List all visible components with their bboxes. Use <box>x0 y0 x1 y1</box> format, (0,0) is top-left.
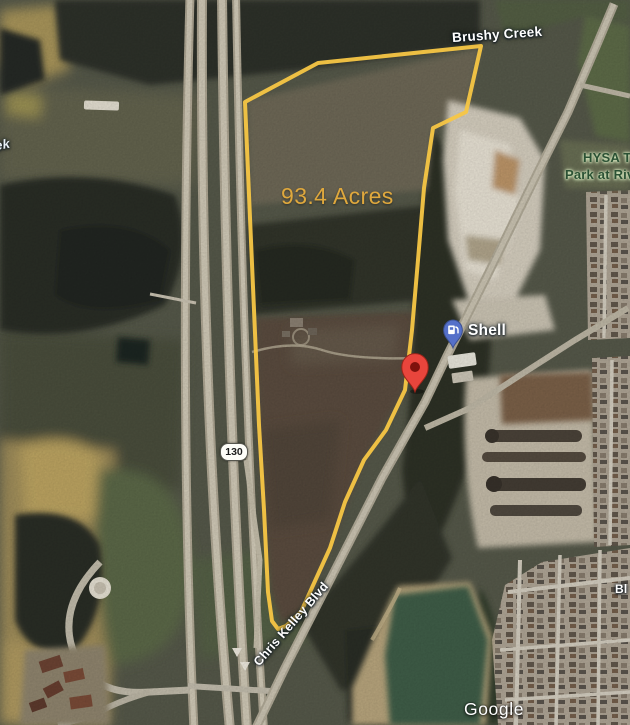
highway-130-shield: 130 <box>220 443 248 461</box>
gas-station-label[interactable]: Shell <box>468 322 506 340</box>
acreage-label: 93.4 Acres <box>281 183 394 210</box>
park-label-line1: HYSA T <box>565 149 630 166</box>
location-pin-icon <box>399 352 431 394</box>
google-watermark: Google <box>464 699 524 720</box>
park-label-line2: Park at Riv <box>565 167 630 182</box>
property-boundary-overlay <box>0 0 630 725</box>
park-label[interactable]: HYSA T Park at Riv <box>565 149 630 183</box>
satellite-map-canvas[interactable]: Brushy Creek ek 93.4 Acres HYSA T Park a… <box>0 0 630 725</box>
street-label-partial: Bl <box>615 582 627 596</box>
gas-pump-icon <box>440 314 466 350</box>
